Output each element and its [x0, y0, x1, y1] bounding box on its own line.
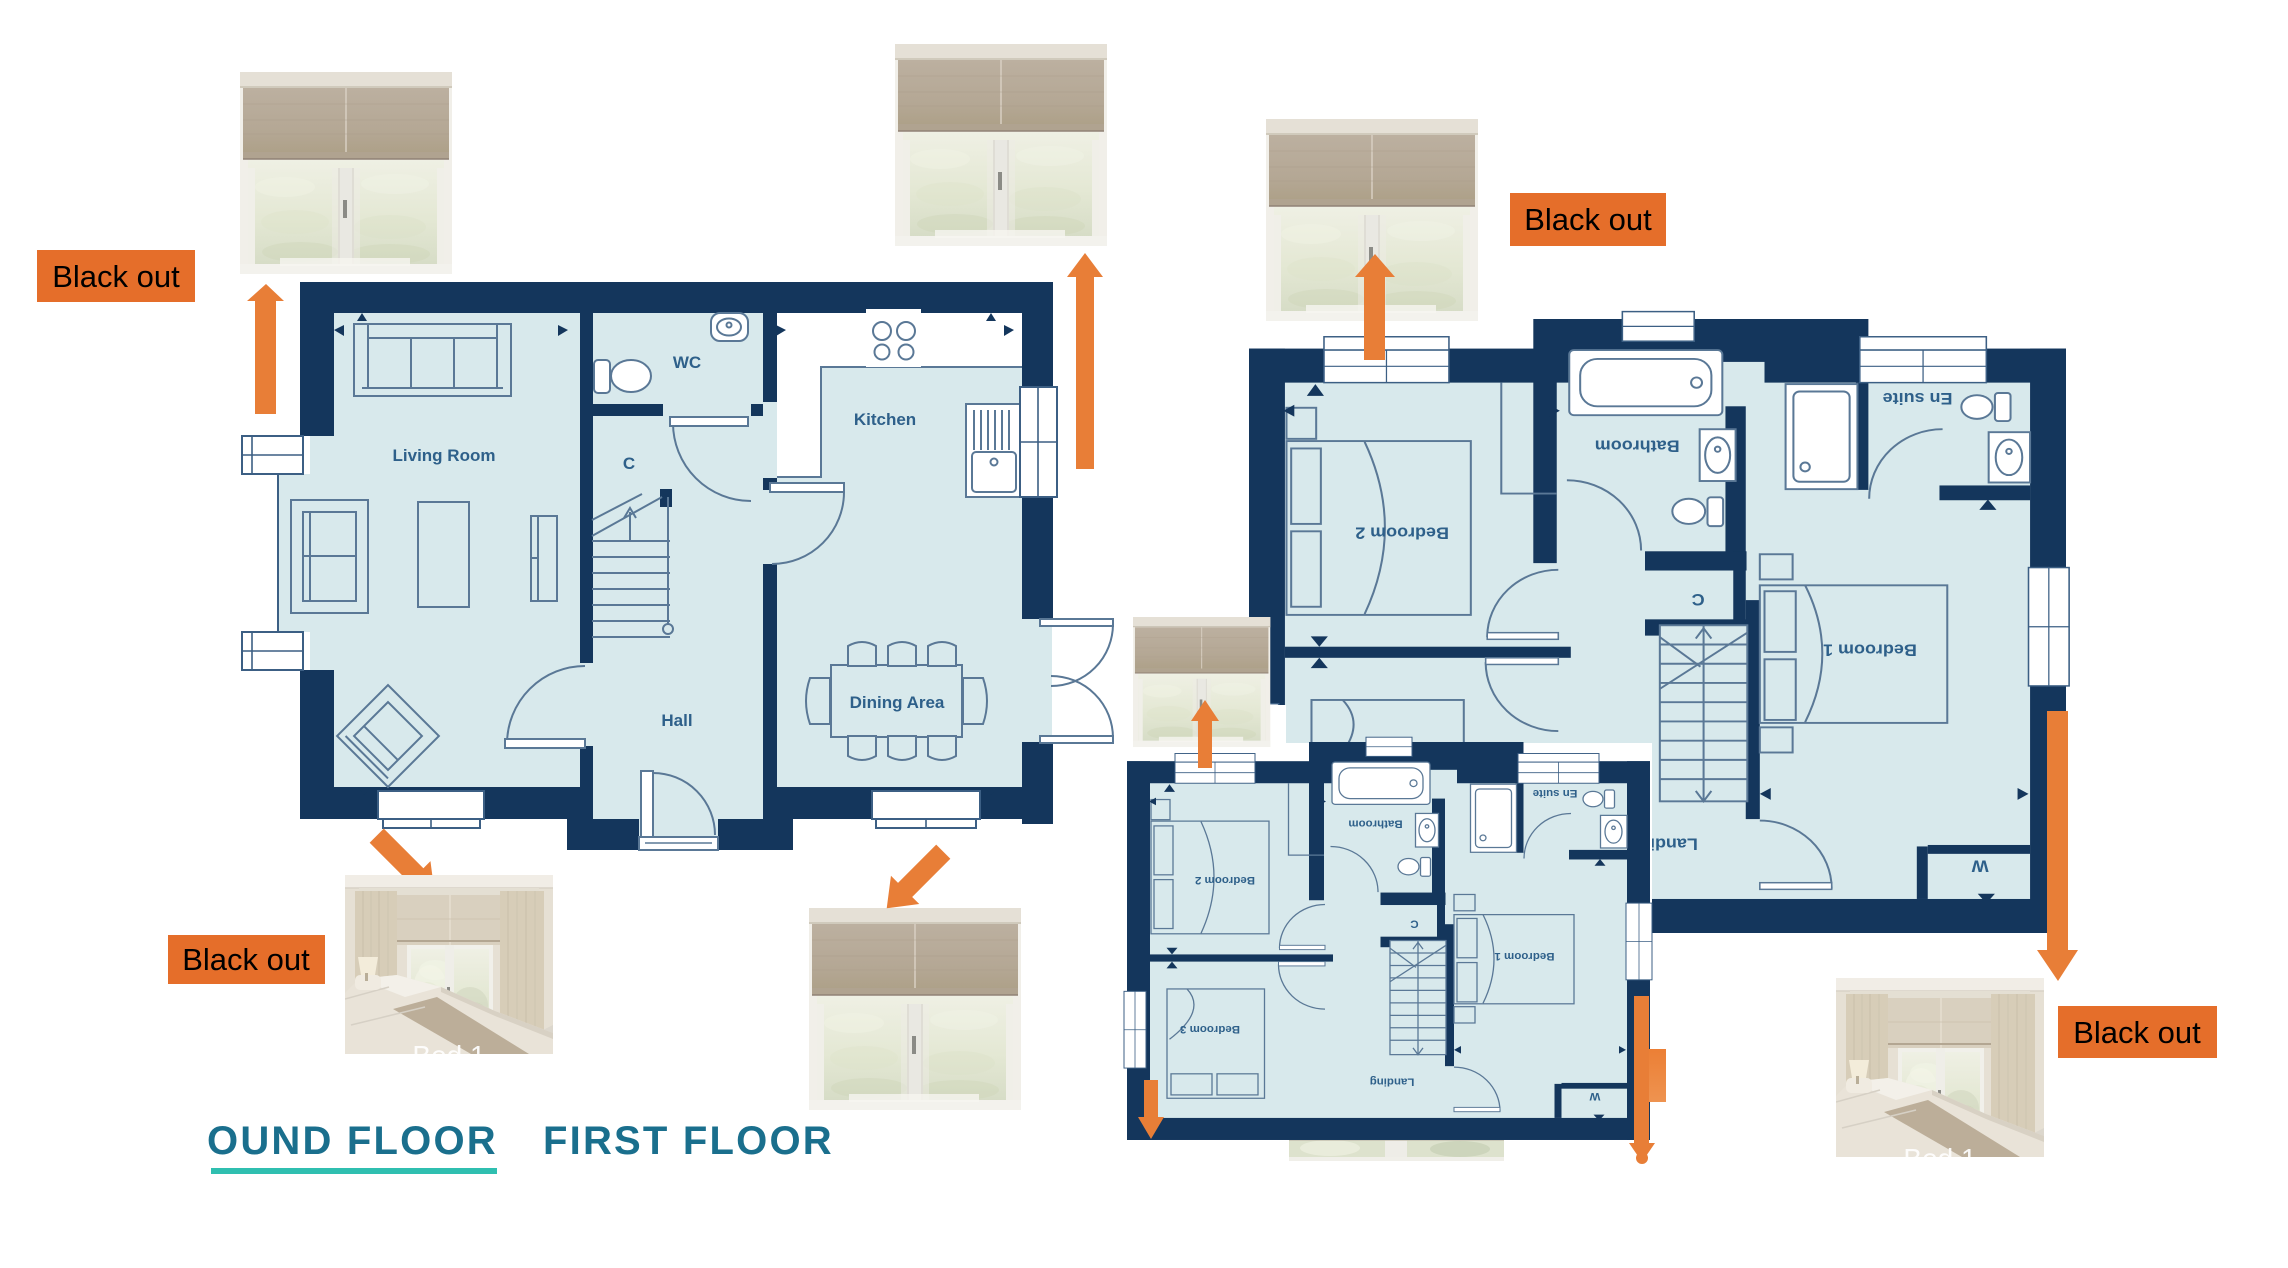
svg-text:OUND FLOOR: OUND FLOOR	[207, 1119, 498, 1163]
svg-text:Black out: Black out	[52, 259, 180, 294]
svg-text:FIRST FLOOR: FIRST FLOOR	[543, 1119, 834, 1163]
svg-text:Living Room: Living Room	[393, 446, 496, 465]
svg-text:C: C	[623, 454, 635, 473]
svg-text:Hall: Hall	[661, 711, 692, 730]
svg-text:Black out: Black out	[182, 942, 310, 977]
svg-text:WC: WC	[673, 353, 701, 372]
svg-text:Dining Area: Dining Area	[850, 693, 945, 712]
svg-text:Black out: Black out	[1524, 202, 1652, 237]
svg-text:Black out: Black out	[2073, 1015, 2201, 1050]
svg-text:Kitchen: Kitchen	[854, 410, 916, 429]
